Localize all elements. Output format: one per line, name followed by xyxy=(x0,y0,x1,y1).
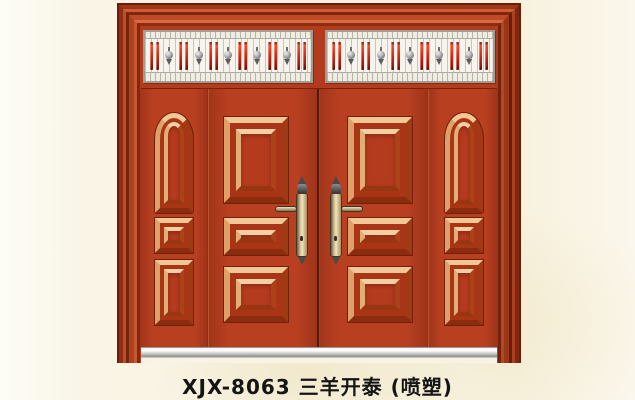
grille-grid-top xyxy=(327,32,493,39)
spear-ornament-icon xyxy=(405,47,414,65)
spear-ornament-icon xyxy=(464,47,473,65)
ornament-row xyxy=(150,39,306,72)
vertical-panel xyxy=(445,260,483,325)
arched-panel xyxy=(445,113,483,213)
panel-seam xyxy=(427,89,429,348)
spear-ornament-icon xyxy=(165,47,174,65)
panel-seam xyxy=(207,89,209,348)
red-rod-pair xyxy=(361,42,370,70)
door-frame xyxy=(117,3,521,363)
product-image-background: XJX-8063 三羊开泰 (喷塑) xyxy=(0,0,635,400)
left-door-handle xyxy=(296,176,308,265)
handle-finial-icon xyxy=(298,176,306,184)
handle-finial-icon xyxy=(332,176,340,184)
product-caption: XJX-8063 三羊开泰 (喷塑) xyxy=(0,371,635,400)
leaf-middle-panel xyxy=(348,218,412,255)
leaf-top-panel xyxy=(224,117,288,203)
spear-ornament-icon xyxy=(347,47,356,65)
door-assembly xyxy=(140,26,498,363)
handle-crown xyxy=(331,184,341,193)
transom-window xyxy=(143,30,495,83)
center-meeting-stile xyxy=(317,89,320,348)
left-side-panel xyxy=(140,89,208,348)
square-panel xyxy=(445,218,483,253)
transom-panel xyxy=(325,30,495,83)
red-rod-pair xyxy=(209,42,218,70)
ornament-row xyxy=(332,39,488,72)
leaf-bottom-panel xyxy=(348,267,412,322)
door-product-image xyxy=(117,3,521,363)
transom-panel xyxy=(143,30,313,83)
red-rod-pair xyxy=(450,42,459,70)
red-rod-pair xyxy=(150,42,159,70)
keyhole-icon xyxy=(334,236,337,241)
red-rod-pair xyxy=(179,42,188,70)
spear-ornament-icon xyxy=(376,47,385,65)
lever-handle xyxy=(341,206,363,212)
handle-finial-icon xyxy=(332,257,340,265)
red-rod-pair xyxy=(420,42,429,70)
right-side-panel xyxy=(428,89,498,348)
handle-plate xyxy=(330,193,342,257)
red-rod-pair xyxy=(332,42,341,70)
square-panel xyxy=(155,218,193,253)
spear-ornament-icon xyxy=(253,47,262,65)
leaf-bottom-panel xyxy=(224,267,288,322)
lever-handle xyxy=(275,206,297,212)
leaf-top-panel xyxy=(348,117,412,203)
red-rod-pair xyxy=(297,42,306,70)
threshold-sill xyxy=(141,347,497,358)
red-rod-pair xyxy=(391,42,400,70)
handle-finial-icon xyxy=(298,257,306,265)
handle-plate xyxy=(296,193,308,257)
vertical-panel xyxy=(155,260,193,325)
spear-ornament-icon xyxy=(435,47,444,65)
grille-grid-bottom xyxy=(327,72,493,81)
grille-grid-bottom xyxy=(145,72,311,81)
floor-gap xyxy=(141,358,497,363)
grille-grid-top xyxy=(145,32,311,39)
handle-crown xyxy=(297,184,307,193)
spear-ornament-icon xyxy=(223,47,232,65)
keyhole-icon xyxy=(300,236,303,241)
leaf-middle-panel xyxy=(224,218,288,255)
spear-ornament-icon xyxy=(282,47,291,65)
red-rod-pair xyxy=(238,42,247,70)
spear-ornament-icon xyxy=(194,47,203,65)
red-rod-pair xyxy=(268,42,277,70)
red-rod-pair xyxy=(479,42,488,70)
right-door-handle xyxy=(330,176,342,265)
arched-panel xyxy=(155,113,193,213)
